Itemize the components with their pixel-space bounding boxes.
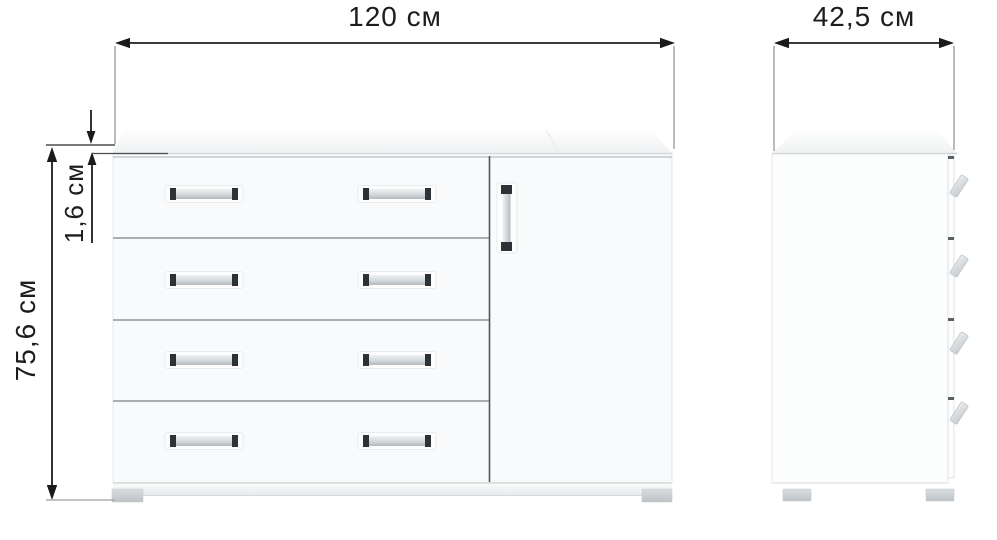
front-foot-right: [642, 489, 672, 502]
side-drawer-front-strip: [948, 156, 954, 478]
drawer2-handle-right: [358, 272, 436, 289]
front-plinth: [113, 484, 672, 496]
drawer3-handle-right: [358, 352, 436, 369]
drawer1-handle-left: [165, 186, 243, 203]
front-view: [112, 128, 672, 502]
drawer2-handle-left: [165, 272, 243, 289]
furniture-dimension-diagram: 120 см 42,5 см 75,6 см 1,6 см: [0, 0, 997, 540]
diagram-linework: [0, 0, 997, 540]
front-door-handle: [497, 183, 517, 253]
side-foot-left: [783, 489, 811, 501]
front-top-panel: [113, 128, 672, 153]
drawer4-handle-right: [358, 433, 436, 450]
side-foot-right: [926, 489, 954, 501]
drawer4-handle-left: [165, 433, 243, 450]
height-dimension-label: 75,6 см: [11, 270, 41, 390]
front-foot-left: [112, 489, 143, 502]
side-top-panel: [772, 129, 957, 153]
side-body-panel: [772, 154, 948, 483]
depth-dimension-label: 42,5 см: [804, 2, 924, 32]
thickness-dimension-label: 1,6 см: [59, 148, 89, 258]
width-dimension-label: 120 см: [335, 2, 455, 32]
side-view: [772, 129, 969, 501]
drawer3-handle-left: [165, 352, 243, 369]
drawer1-handle-right: [358, 186, 436, 203]
